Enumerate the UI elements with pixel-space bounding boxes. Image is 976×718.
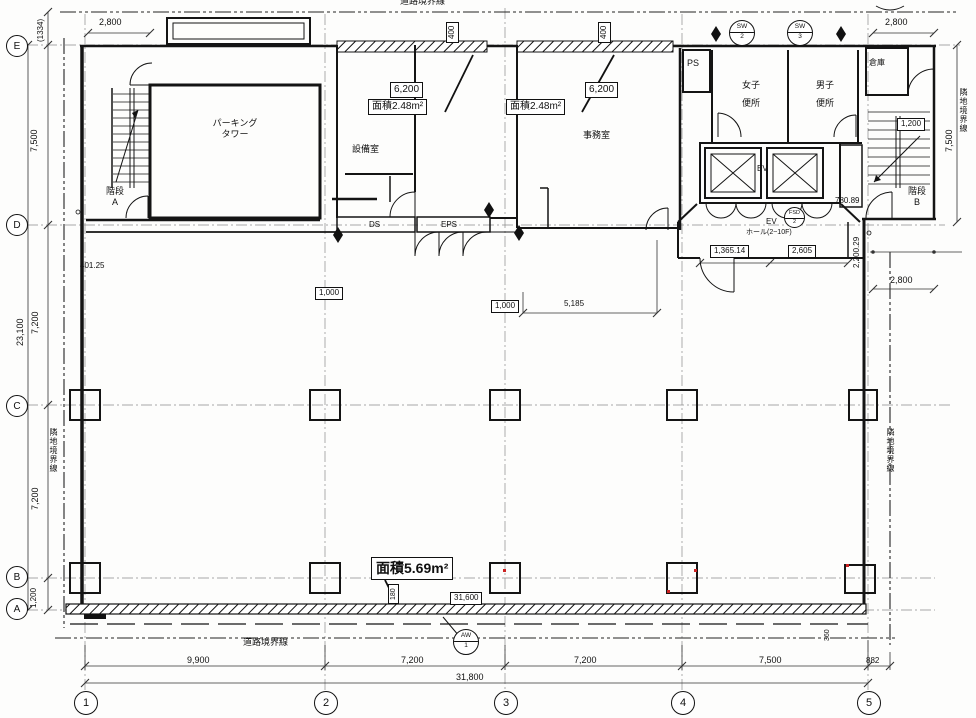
room-ps-label: PS — [687, 58, 699, 69]
room-parking-tower-label: パーキング タワー — [203, 118, 267, 141]
dim-7500-right: 7,500 — [944, 129, 955, 152]
floor-plan: 道路境界線 道路境界線 隣地境界線 隣地境界線 隣地境界線 E D C B A … — [0, 0, 976, 718]
dim-6200-a: 6,200 — [390, 82, 423, 98]
dim-1200-left: 1,200 — [29, 588, 39, 608]
dim-2800-top-right: 2,800 — [885, 17, 908, 28]
dim-5185: 5,185 — [564, 299, 584, 309]
dim-400-b: 400 — [598, 22, 611, 43]
dim-1365: 1,365.14 — [710, 245, 749, 258]
road-boundary-bottom-label: 道路境界線 — [243, 637, 288, 648]
equipment-room — [332, 45, 415, 218]
marker-aw: AW1 — [453, 629, 479, 655]
grid-col-3: 3 — [494, 691, 518, 715]
grid-row-c: C — [6, 395, 28, 417]
dim-2800-top-left: 2,800 — [99, 17, 122, 28]
dim-2800-right: 2,800 — [890, 275, 913, 286]
grid-row-e: E — [6, 35, 28, 57]
room-stairs-a-label: 階段 A — [98, 186, 132, 209]
room-storage-label: 倉庫 — [869, 58, 885, 68]
grid-col-1: 1 — [74, 691, 98, 715]
room-women-toilet-label: 女子 便所 — [736, 76, 766, 112]
dim-9900-bottom: 9,900 — [187, 655, 210, 666]
dim-7500-left: 7,500 — [29, 129, 40, 152]
dim-1000-b: 1,000 — [491, 300, 519, 313]
grid-col-5: 5 — [857, 691, 881, 715]
room-equipment-label: 設備室 — [352, 144, 379, 155]
dim-1334: (1334) — [36, 19, 46, 42]
dim-7200-left-lower: 7,200 — [30, 487, 41, 510]
dim-7500-bottom: 7,500 — [759, 655, 782, 666]
dim-6200-b: 6,200 — [585, 82, 618, 98]
area-label-b: 面積2.48m² — [506, 99, 565, 115]
dim-400-a: 400 — [446, 22, 459, 43]
grid-col-2: 2 — [314, 691, 338, 715]
area-label-bottom: 面積5.69m² — [371, 557, 453, 580]
grid-row-a: A — [6, 598, 28, 620]
dim-2200: 2,200.29 — [852, 237, 862, 268]
dim-31600: 31,600 — [450, 592, 482, 605]
dim-2605: 2,605 — [788, 245, 816, 258]
dim-882-bottom: 882 — [866, 656, 879, 666]
dim-7200-bottom-b: 7,200 — [574, 655, 597, 666]
dim-1200-stairs-b: 1,200 — [897, 118, 925, 131]
dim-31800-bottom: 31,800 — [456, 672, 484, 683]
survey-marks — [503, 564, 849, 593]
dim-40125: 401.25 — [80, 261, 104, 271]
ev-hall-label-line1: EV — [766, 217, 777, 227]
marker-sw3: SW3 — [787, 20, 813, 46]
adjacent-boundary-right-top-label: 隣地境界線 — [958, 88, 968, 133]
dim-180: 180 — [388, 584, 399, 604]
dim-1000-a: 1,000 — [315, 287, 343, 300]
dim-360: 360 — [824, 629, 833, 641]
eps-label: EPS — [441, 220, 457, 230]
dim-23100-left: 23,100 — [15, 318, 26, 346]
elevators — [700, 143, 862, 218]
ev-hall-label-line2: ホール(2~10F) — [746, 229, 792, 238]
elevator-label: EV — [757, 164, 768, 174]
marker-fsd: FSD2 — [784, 207, 805, 228]
adjacent-boundary-left-label: 隣地境界線 — [48, 428, 58, 473]
road-boundary-top-label: 道路境界線 — [400, 0, 445, 7]
grid-row-b: B — [6, 566, 28, 588]
grid-col-4: 4 — [671, 691, 695, 715]
dim-7200-left-upper: 7,200 — [30, 311, 41, 334]
leader-lines — [385, 44, 614, 636]
dim-780: 780.89 — [835, 196, 859, 206]
dim-7200-bottom-a: 7,200 — [401, 655, 424, 666]
area-label-a: 面積2.48m² — [368, 99, 427, 115]
grid-row-d: D — [6, 214, 28, 236]
room-men-toilet-label: 男子 便所 — [810, 76, 840, 112]
marker-sw2: SW2 — [729, 20, 755, 46]
room-office-label: 事務室 — [583, 130, 610, 141]
ds-label: DS — [369, 220, 380, 230]
room-stairs-b-label: 階段 B — [900, 186, 934, 209]
adjacent-boundary-right-label: 隣地境界線 — [885, 428, 895, 473]
columns — [70, 390, 877, 593]
exterior-walls — [66, 6, 936, 624]
